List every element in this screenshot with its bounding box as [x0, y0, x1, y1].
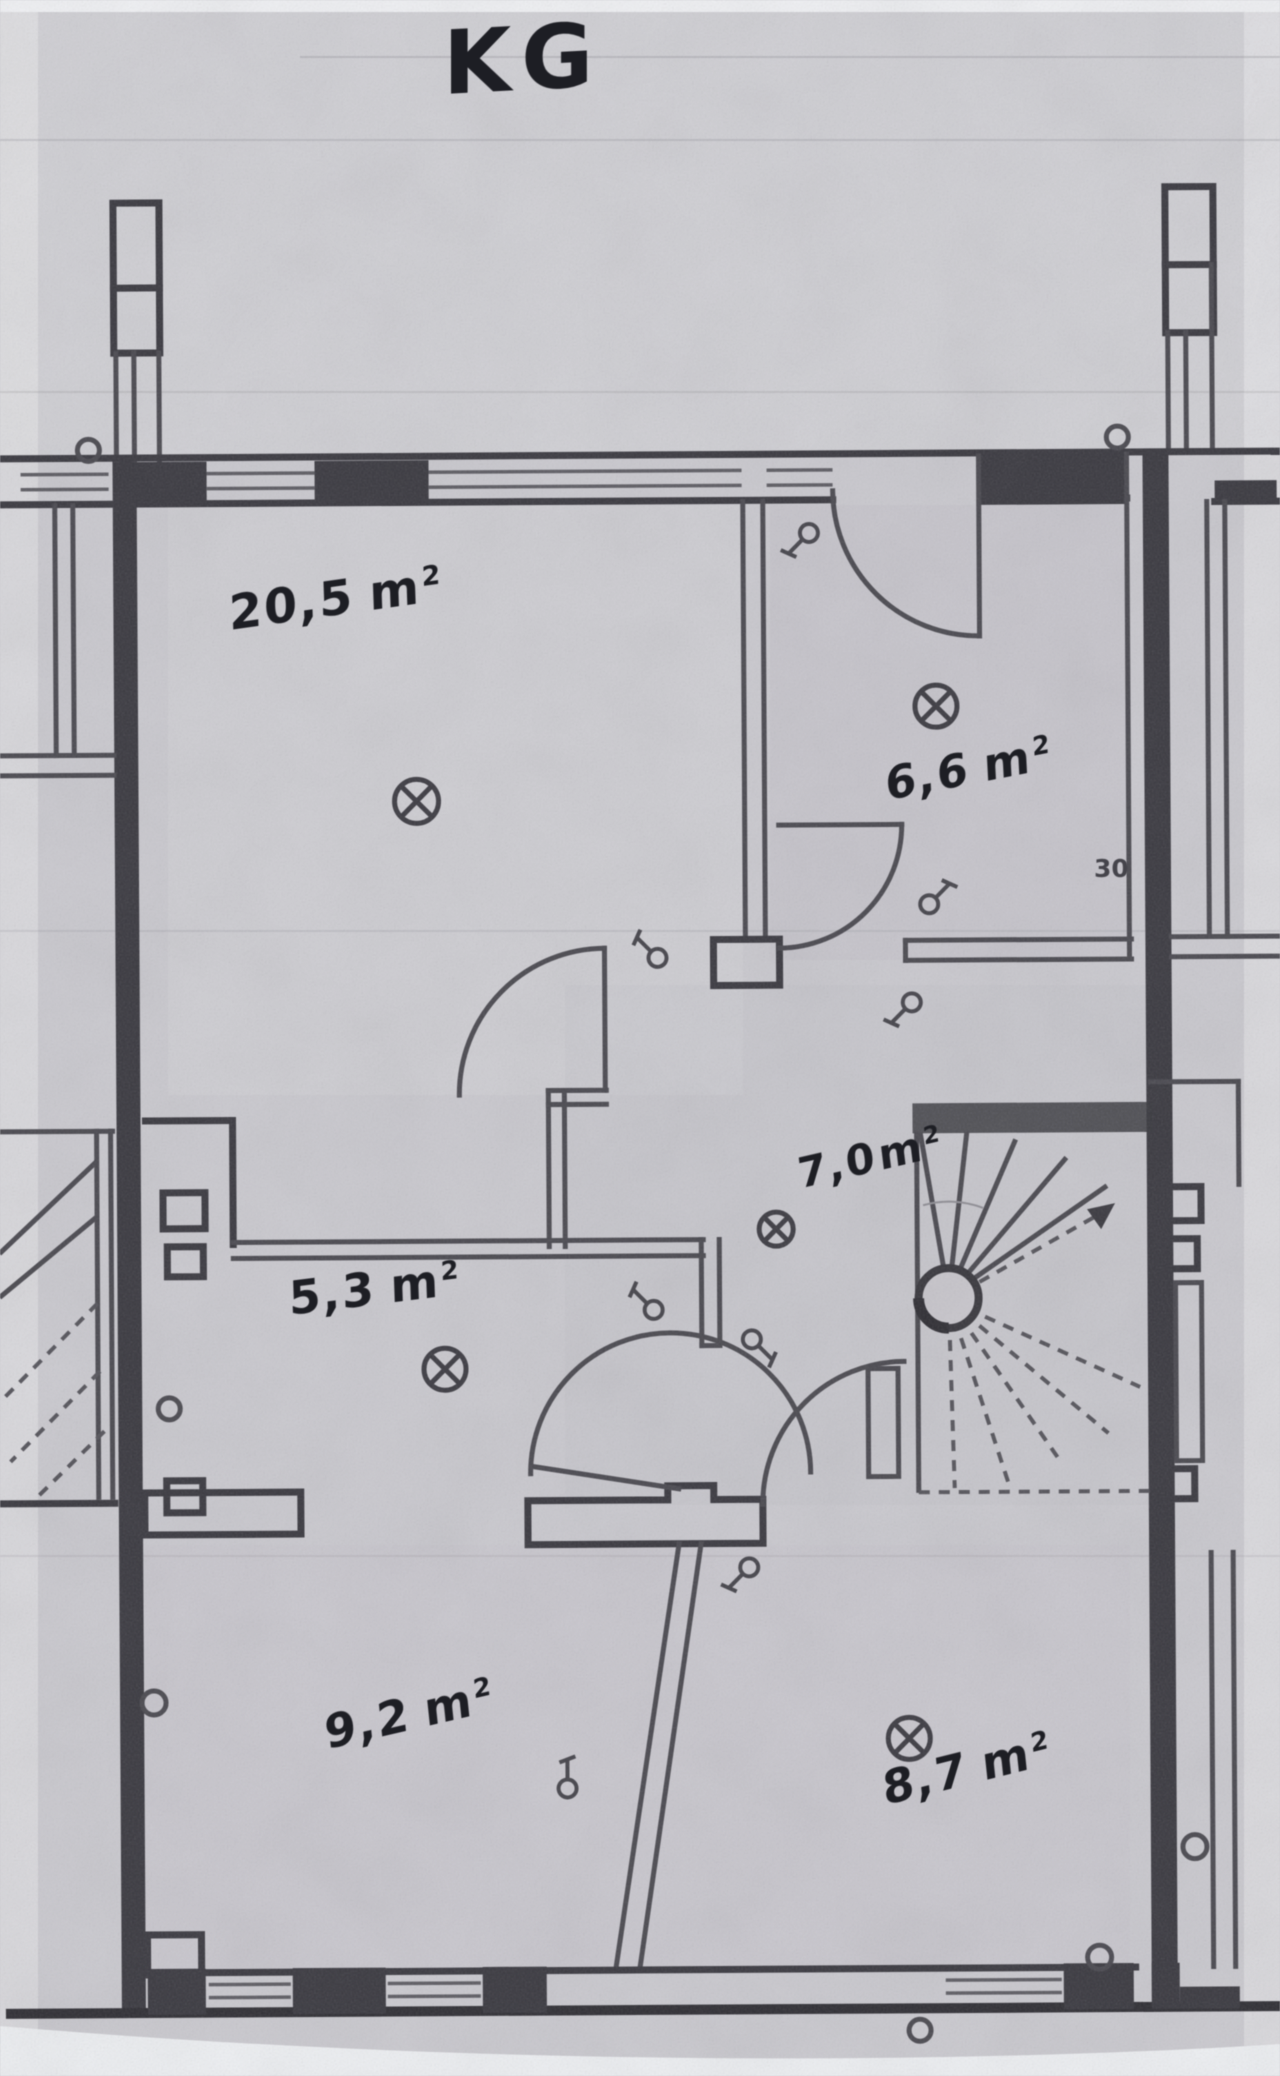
area-unit: m [982, 730, 1033, 793]
scan-blotch-overlay [0, 0, 1280, 2076]
area-exponent: 2 [472, 1671, 495, 1706]
area-exponent: 2 [1031, 729, 1052, 762]
area-exponent: 2 [1029, 1724, 1051, 1759]
area-exponent: 2 [922, 1119, 943, 1151]
wall-thickness-dimension: 30 [1094, 854, 1129, 883]
area-unit: m [389, 1253, 440, 1313]
scanned-floorplan-page: KG 20,5m2 6,6m2 7,0m2 5,3m2 9,2m2 8,7m2 … [0, 0, 1280, 2076]
floor-level-title: KG [443, 4, 603, 116]
area-value: 5,3 [288, 1261, 377, 1326]
area-unit: m [368, 559, 421, 623]
area-unit: m [876, 1121, 927, 1180]
area-exponent: 2 [421, 559, 443, 593]
area-unit: m [422, 1672, 476, 1737]
floorplan-drawing [0, 0, 1280, 2076]
area-exponent: 2 [440, 1255, 461, 1288]
